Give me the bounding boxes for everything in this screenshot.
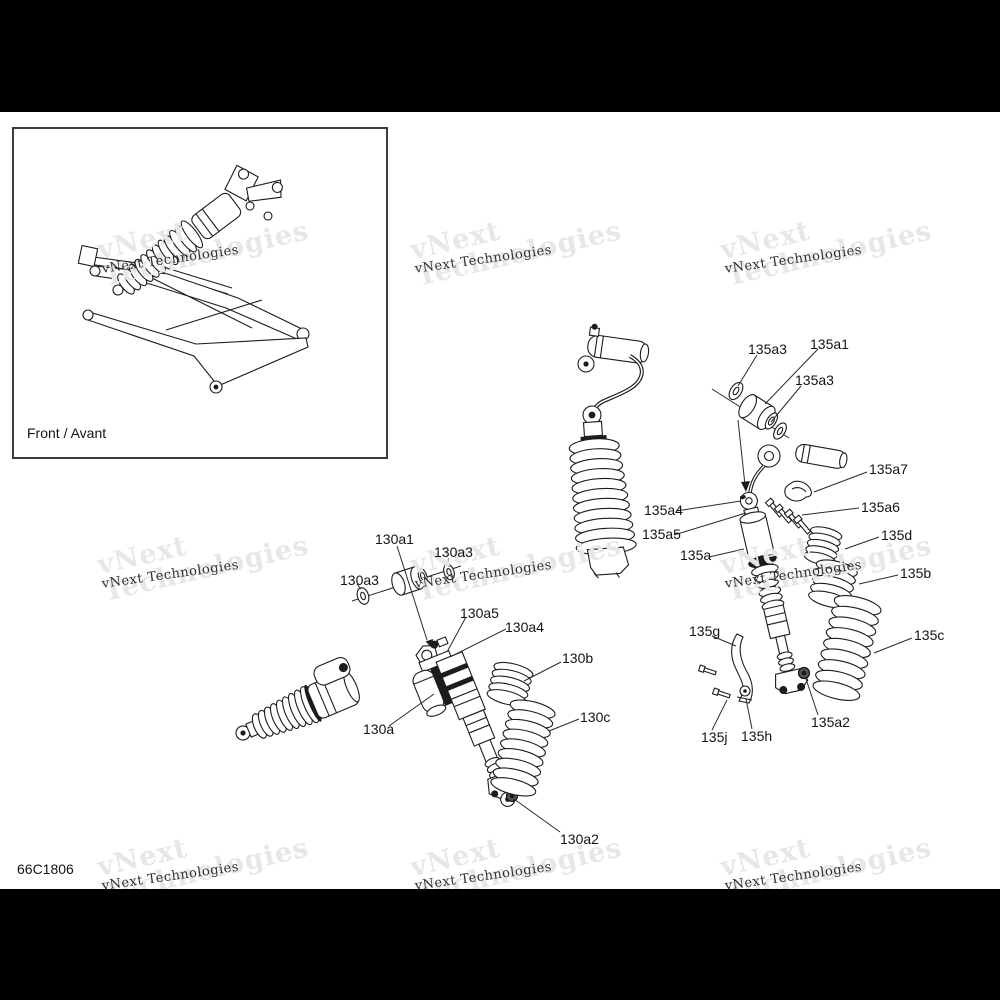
- spring-130c: [489, 696, 557, 799]
- nut-135a2: [799, 668, 810, 679]
- inset-front-assembly-drawing: [78, 150, 309, 393]
- callout-135a7: 135a7: [869, 462, 908, 477]
- callout-135g: 135g: [689, 624, 720, 639]
- callout-135a6: 135a6: [861, 500, 900, 515]
- shock-assembly-135: [566, 323, 651, 580]
- callout-135h: 135h: [741, 729, 772, 744]
- right-parts-cluster: [699, 380, 883, 704]
- bushing-135a1: [735, 392, 782, 435]
- callout-130a1: 130a1: [375, 532, 414, 547]
- callout-130a3-right: 130a3: [434, 545, 473, 560]
- washer-130a3-left: [355, 586, 371, 606]
- callout-135a5: 135a5: [642, 527, 681, 542]
- inset-caption: Front / Avant: [27, 425, 106, 441]
- washer-135h: [740, 686, 750, 696]
- reservoir-135a: [794, 443, 848, 470]
- callout-135d: 135d: [881, 528, 912, 543]
- bolt-135j: [713, 688, 731, 699]
- parts-diagram-page: 130a1 130a3 130a3 130a5 130a4 130b 130c …: [0, 0, 1000, 1000]
- callout-135c: 135c: [914, 628, 944, 643]
- callout-135a: 135a: [680, 548, 711, 563]
- part-code: 66C1806: [17, 861, 74, 877]
- callout-135a3-upper: 135a3: [748, 342, 787, 357]
- callout-130c: 130c: [580, 710, 610, 725]
- shock-assembled-bottom-left: [224, 655, 365, 754]
- callout-135a1: 135a1: [810, 337, 849, 352]
- bolt-small: [699, 665, 717, 676]
- callout-135a2: 135a2: [811, 715, 850, 730]
- suspension-diagram-artwork: [0, 0, 1000, 1000]
- letterbox-top: [0, 0, 1000, 112]
- spring-135c: [811, 592, 883, 705]
- washer-135a3-upper: [726, 380, 745, 402]
- callout-135a3-lower: 135a3: [795, 373, 834, 388]
- callout-130a3-left: 130a3: [340, 573, 379, 588]
- callout-130a4: 130a4: [505, 620, 544, 635]
- shock-body-130a: [401, 632, 524, 823]
- callout-130a2: 130a2: [560, 832, 599, 847]
- bushing-130a1: [389, 564, 430, 597]
- callout-130a5: 130a5: [460, 606, 499, 621]
- letterbox-bottom: [0, 889, 1000, 1000]
- callout-130a: 130a: [363, 722, 394, 737]
- callout-135a4: 135a4: [644, 503, 683, 518]
- bolts-135a6: [765, 498, 811, 535]
- callout-135j: 135j: [701, 730, 727, 745]
- center-parts-cluster: [352, 563, 557, 823]
- clamp-135a7: [785, 481, 812, 501]
- callout-135b: 135b: [900, 566, 931, 581]
- callout-130b: 130b: [562, 651, 593, 666]
